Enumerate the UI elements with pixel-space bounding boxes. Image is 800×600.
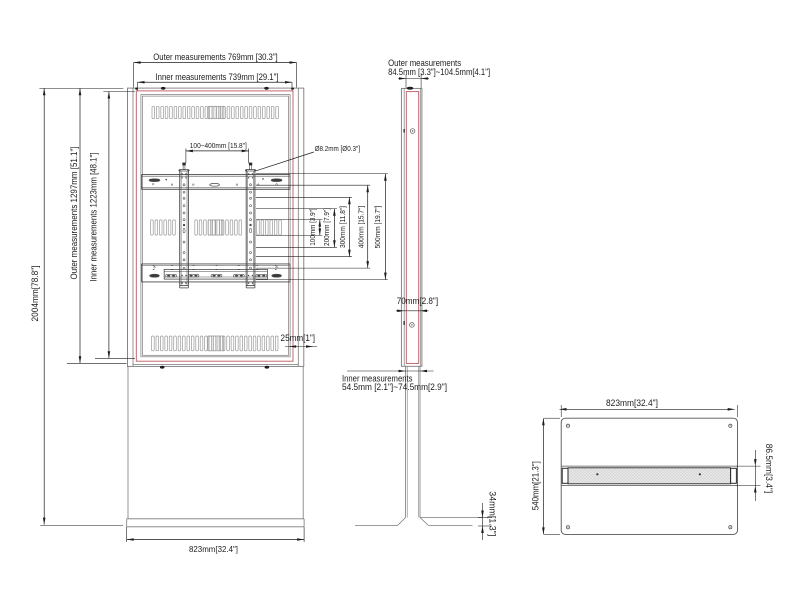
svg-text:823mm[32.4"]: 823mm[32.4"] bbox=[606, 398, 658, 408]
svg-text:Inner measurements 1223mm [48: Inner measurements 1223mm [48.1"] bbox=[88, 153, 99, 282]
svg-text:300mm [11.8"]: 300mm [11.8"] bbox=[340, 206, 347, 248]
svg-text:400mm [15.7"]: 400mm [15.7"] bbox=[358, 206, 365, 248]
svg-text:86.5mm[3.4"]: 86.5mm[3.4"] bbox=[764, 444, 774, 494]
svg-text:540mm[21.3"]: 540mm[21.3"] bbox=[531, 461, 541, 510]
svg-text:Ø8.2mm [Ø0.3"]: Ø8.2mm [Ø0.3"] bbox=[315, 144, 360, 153]
svg-text:Inner measurements 739mm [29.1: Inner measurements 739mm [29.1"] bbox=[156, 71, 279, 82]
svg-text:823mm[32.4"]: 823mm[32.4"] bbox=[189, 544, 238, 554]
svg-text:25mm[1"]: 25mm[1"] bbox=[281, 332, 316, 343]
svg-text:Outer measurements 1297mm [51: Outer measurements 1297mm [51.1"] bbox=[68, 147, 79, 280]
svg-text:100mm [3.9"]: 100mm [3.9"] bbox=[310, 208, 317, 245]
svg-text:200mm [7.9"]: 200mm [7.9"] bbox=[324, 208, 331, 246]
svg-text:70mm[2.8"]: 70mm[2.8"] bbox=[397, 295, 438, 306]
svg-text:84.5mm [3.3"]~104.5mm[4.1"]: 84.5mm [3.3"]~104.5mm[4.1"] bbox=[388, 66, 490, 77]
svg-text:2004mm[78.8"]: 2004mm[78.8"] bbox=[29, 266, 40, 322]
svg-text:100~400mm [15.8"]: 100~400mm [15.8"] bbox=[190, 141, 247, 150]
svg-text:54.5mm [2.1"]~74.5mm[2.9"]: 54.5mm [2.1"]~74.5mm[2.9"] bbox=[342, 381, 447, 392]
svg-text:500mm [19.7"]: 500mm [19.7"] bbox=[375, 206, 382, 249]
svg-text:34mm[1.3"]: 34mm[1.3"] bbox=[487, 491, 497, 536]
svg-text:Outer measurements 769mm [30.3: Outer measurements 769mm [30.3"] bbox=[153, 51, 277, 62]
